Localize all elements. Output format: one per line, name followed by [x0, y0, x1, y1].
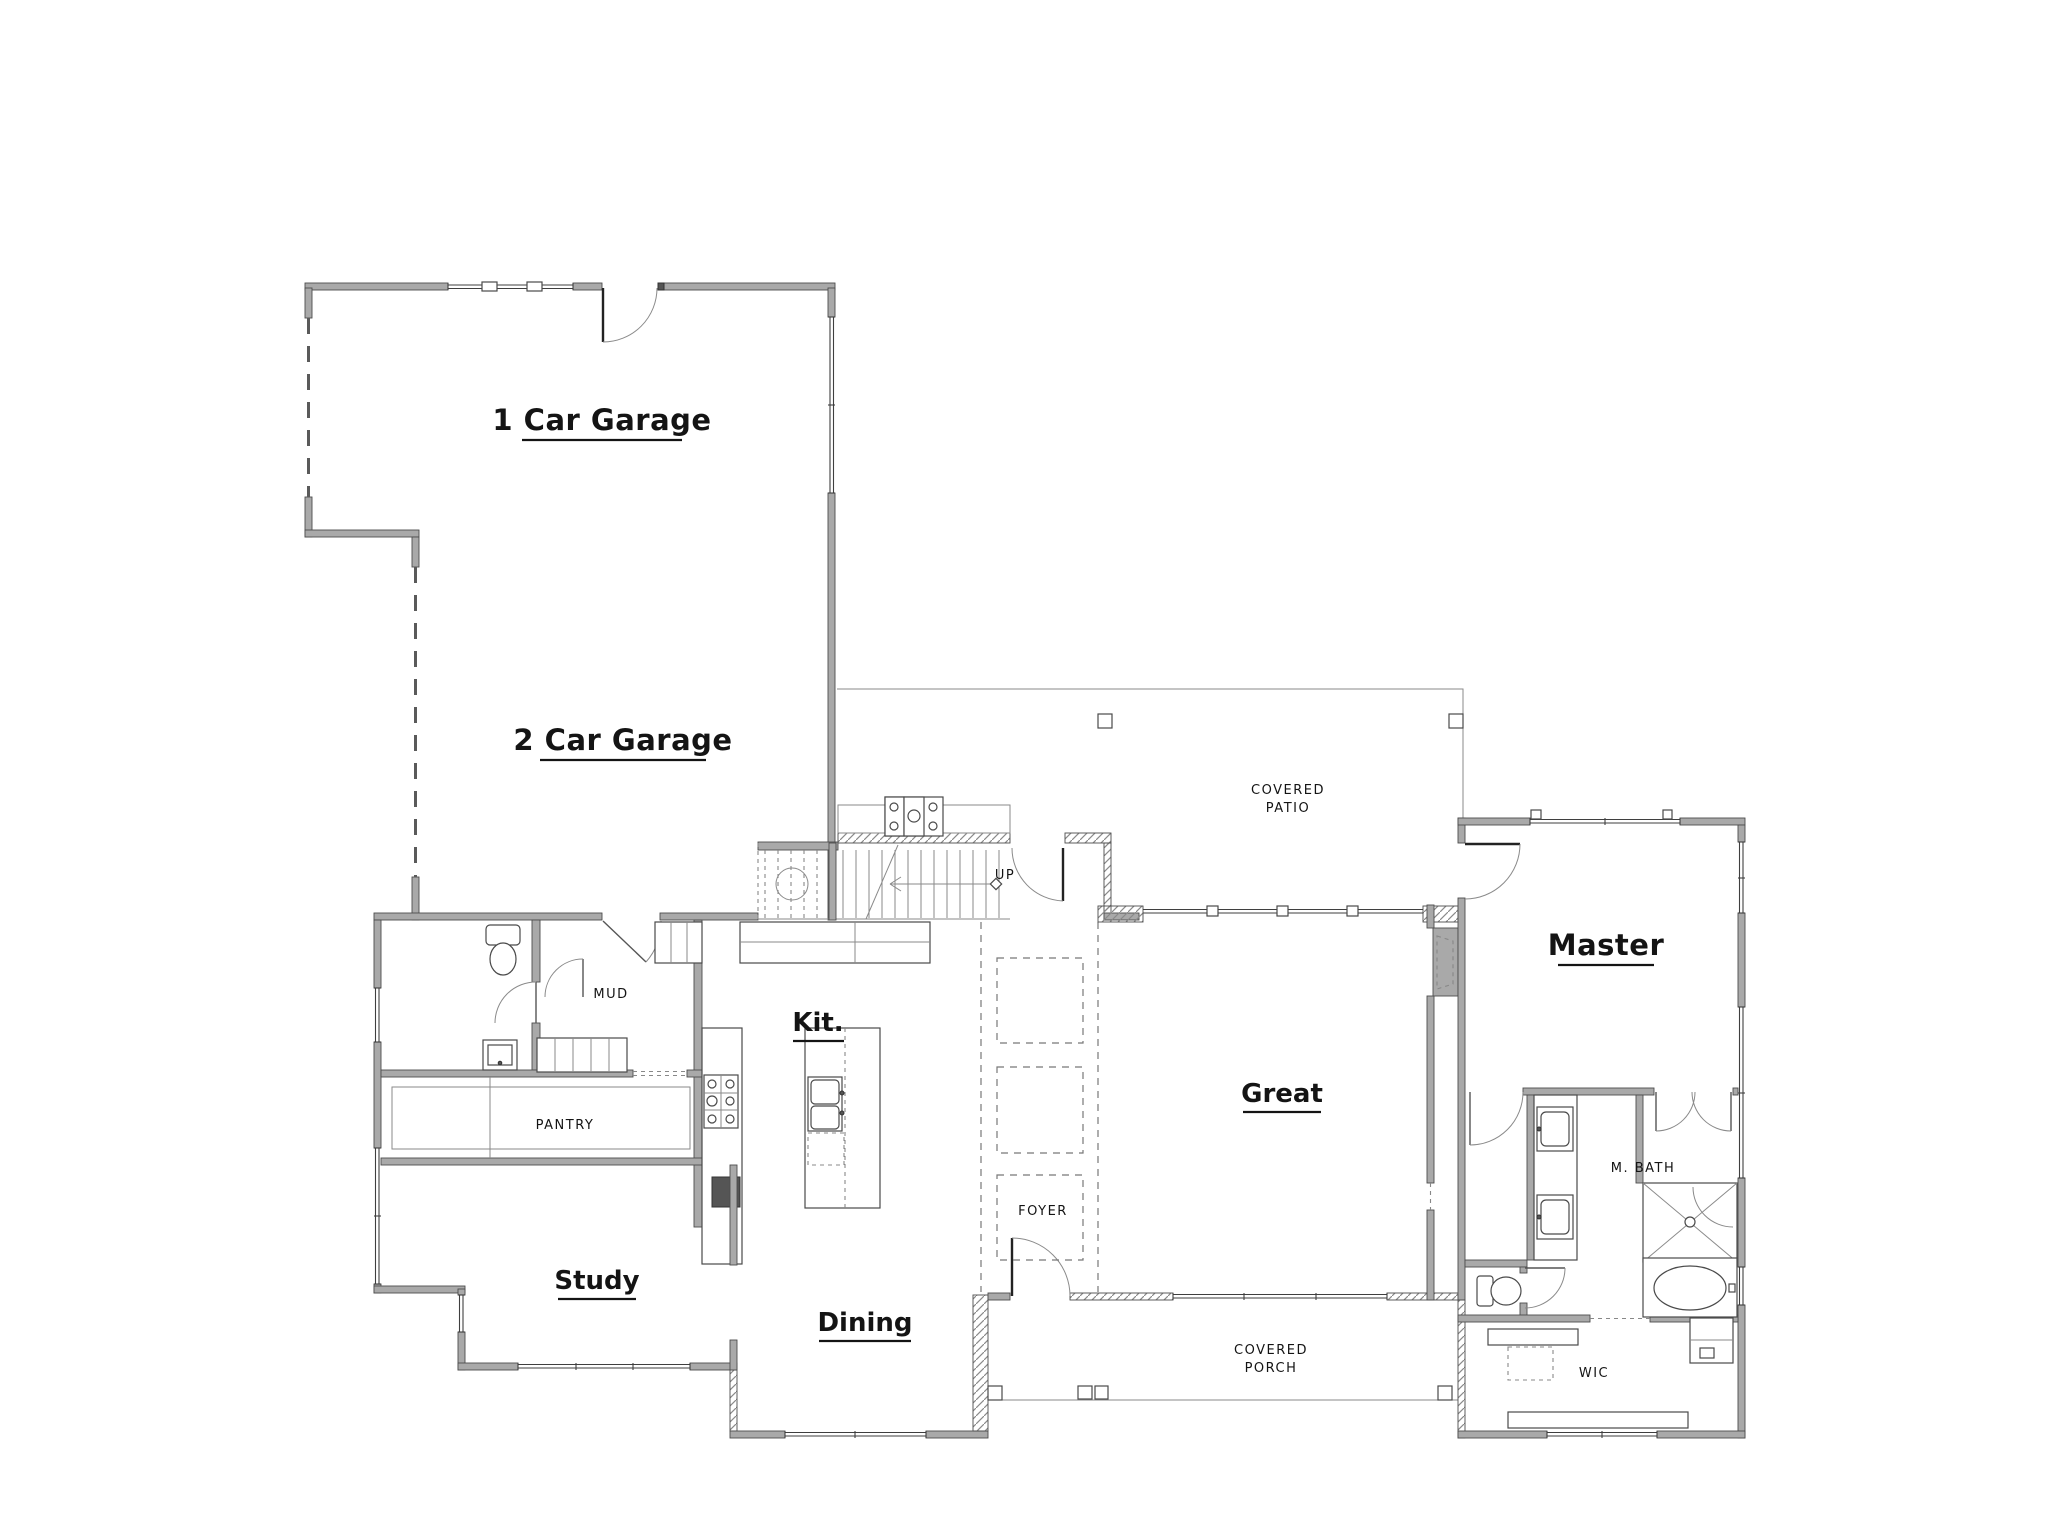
front-door — [1012, 1238, 1070, 1296]
porch-post — [1438, 1386, 1452, 1400]
floor-plan-drawing: 1 Car Garage 2 Car Garage Master Great K… — [0, 0, 2048, 1536]
study-dining-wall — [730, 1165, 737, 1370]
master-vanity — [1534, 1095, 1577, 1260]
foyer-ceiling — [981, 922, 1098, 1292]
label-covered-patio-line2: PATIO — [1266, 801, 1310, 816]
garage-mud-door — [603, 921, 661, 962]
covered-patio — [758, 689, 1463, 920]
label-up: UP — [995, 868, 1015, 883]
powder-door — [495, 982, 536, 1023]
room-labels: 1 Car Garage 2 Car Garage Master Great K… — [492, 403, 1664, 1341]
powder-toilet — [486, 925, 520, 975]
label-covered-patio-line1: COVERED — [1251, 783, 1325, 798]
label-master-bath: M. BATH — [1611, 1161, 1676, 1176]
master-entry-door — [1465, 844, 1520, 899]
mud-bench — [537, 1038, 627, 1072]
floor-plan-page: 1 Car Garage 2 Car Garage Master Great K… — [0, 0, 2048, 1536]
garage-entry-door — [603, 288, 657, 342]
west-wing-walls — [374, 920, 988, 1438]
stair-hall-door — [1012, 848, 1063, 901]
patio-post — [1449, 714, 1463, 728]
grill — [885, 797, 943, 836]
room-label-master: Master — [1548, 928, 1665, 962]
garage-window-east — [828, 317, 835, 493]
porch-post — [1095, 1386, 1108, 1399]
label-foyer: FOYER — [1018, 1204, 1068, 1219]
label-wic: WIC — [1579, 1366, 1609, 1381]
walk-in-closet — [1488, 1318, 1733, 1428]
room-label-1-car-garage: 1 Car Garage — [492, 403, 711, 437]
range-cooktop — [704, 1075, 738, 1128]
mud-powder-pantry-walls — [381, 920, 702, 1227]
stair-direction-arrow — [890, 877, 1002, 891]
master-toilet — [1477, 1268, 1565, 1308]
porch-post — [988, 1386, 1002, 1400]
closet-island — [1508, 1347, 1553, 1380]
label-covered-porch-line2: PORCH — [1245, 1361, 1298, 1376]
stair-post — [776, 868, 808, 900]
room-label-dining: Dining — [817, 1308, 912, 1338]
covered-porch — [988, 1386, 1458, 1400]
powder-sink — [483, 1040, 517, 1070]
staircase — [758, 843, 1063, 920]
porch-post — [1078, 1386, 1092, 1399]
room-label-2-car-garage: 2 Car Garage — [513, 723, 732, 757]
front-wall — [988, 1293, 1458, 1300]
master-bath — [1458, 1088, 1738, 1322]
label-pantry: PANTRY — [536, 1118, 595, 1133]
label-mud: MUD — [593, 987, 628, 1002]
mud-closet-door — [545, 959, 583, 997]
kitchen-island — [805, 1028, 880, 1208]
tub — [1643, 1258, 1737, 1317]
garage-window-north — [448, 282, 573, 291]
label-covered-porch-line1: COVERED — [1234, 1343, 1308, 1358]
garage-walls — [305, 283, 835, 920]
room-label-study: Study — [554, 1266, 639, 1296]
room-label-kitchen: Kit. — [792, 1008, 843, 1038]
patio-post — [1098, 714, 1112, 728]
room-label-great: Great — [1241, 1079, 1323, 1109]
shower — [1643, 1183, 1737, 1262]
